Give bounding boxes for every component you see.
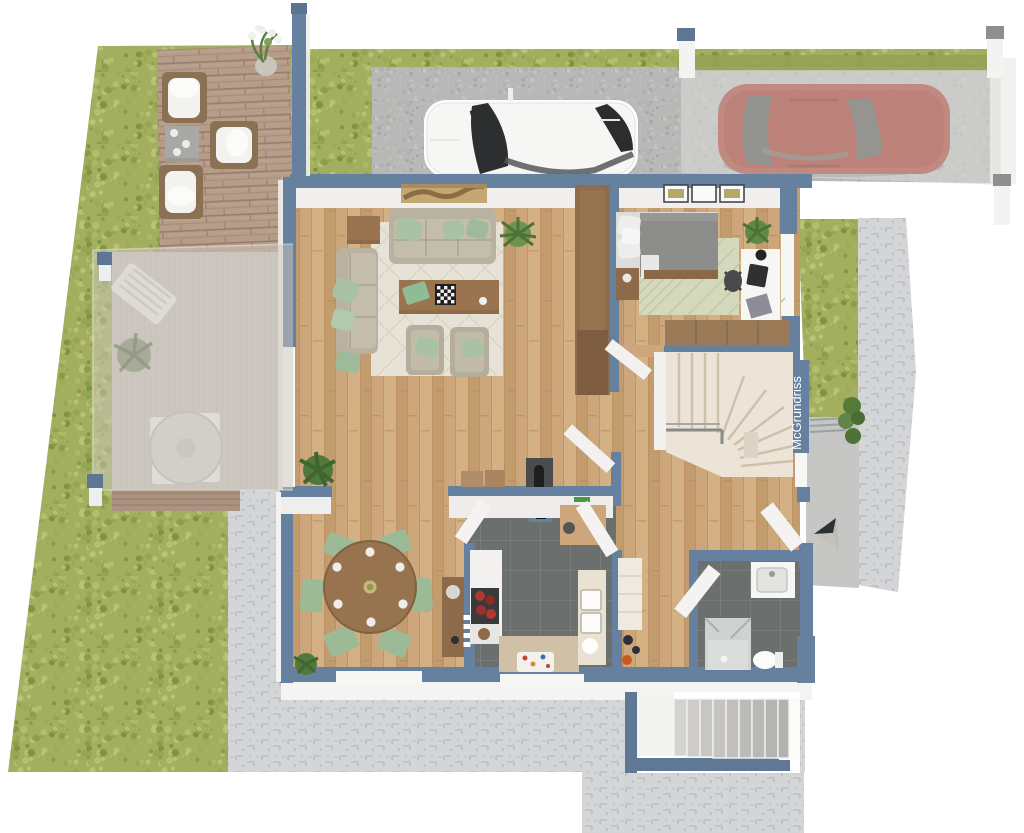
- svg-text:McGrundriss: McGrundriss: [789, 376, 804, 450]
